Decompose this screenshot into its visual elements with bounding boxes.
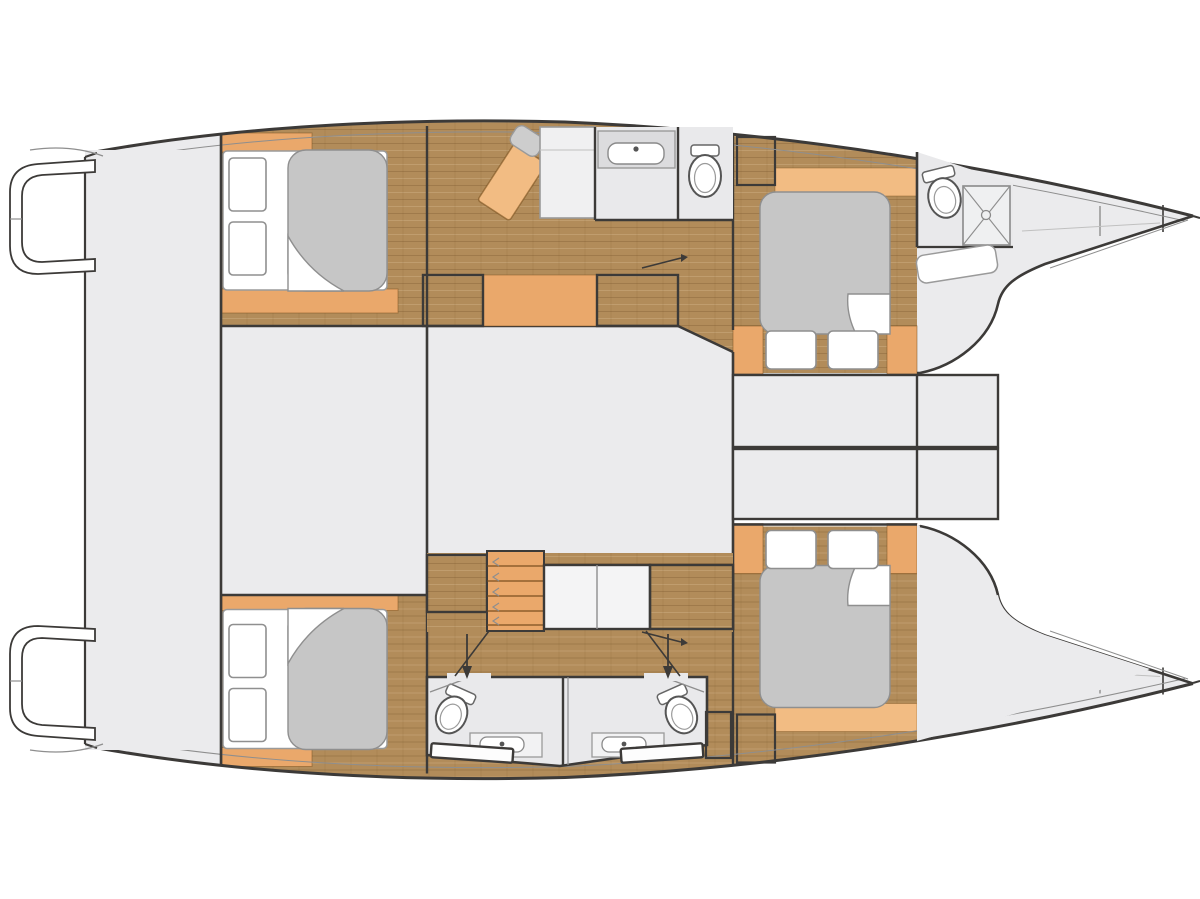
duvet-fold (848, 294, 890, 334)
faucet (500, 742, 505, 747)
aft-platform (85, 150, 221, 750)
pillow (828, 331, 878, 369)
galley-cabinet (483, 275, 597, 326)
pillow (766, 331, 816, 369)
headboard-cabinet (222, 133, 312, 152)
trampoline (1050, 216, 1200, 683)
pillow (229, 158, 266, 211)
aft-cabin (222, 133, 398, 313)
toilet (689, 145, 721, 197)
starboard-bow-deck-patch (917, 524, 1150, 741)
forward-deck (733, 375, 998, 519)
pillow (229, 222, 266, 275)
starboard-inboard-band (427, 551, 733, 646)
shower (963, 186, 1010, 245)
faucet (633, 146, 638, 151)
foot-cabinet (222, 289, 398, 313)
staircase (487, 551, 544, 631)
nightstand (733, 326, 763, 376)
sink-basin (608, 143, 664, 164)
faucet (622, 742, 627, 747)
catamaran-floor-plan (0, 0, 1200, 899)
nightstand (887, 326, 917, 376)
cabinet-block (540, 127, 595, 218)
port-bathroom (595, 127, 733, 220)
floor-plan-page (0, 0, 1200, 899)
